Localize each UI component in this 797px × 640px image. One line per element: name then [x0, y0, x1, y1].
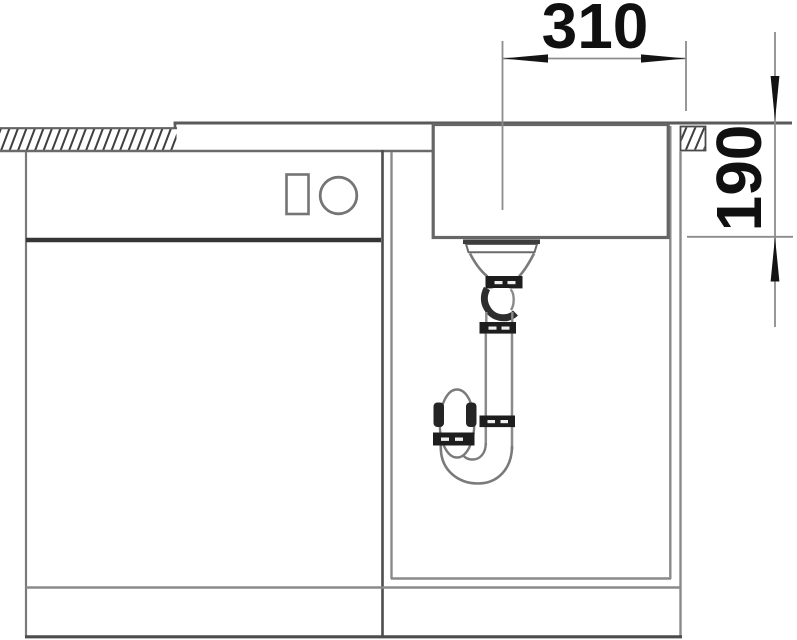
svg-text:190: 190: [703, 125, 775, 232]
svg-text:310: 310: [542, 0, 649, 62]
